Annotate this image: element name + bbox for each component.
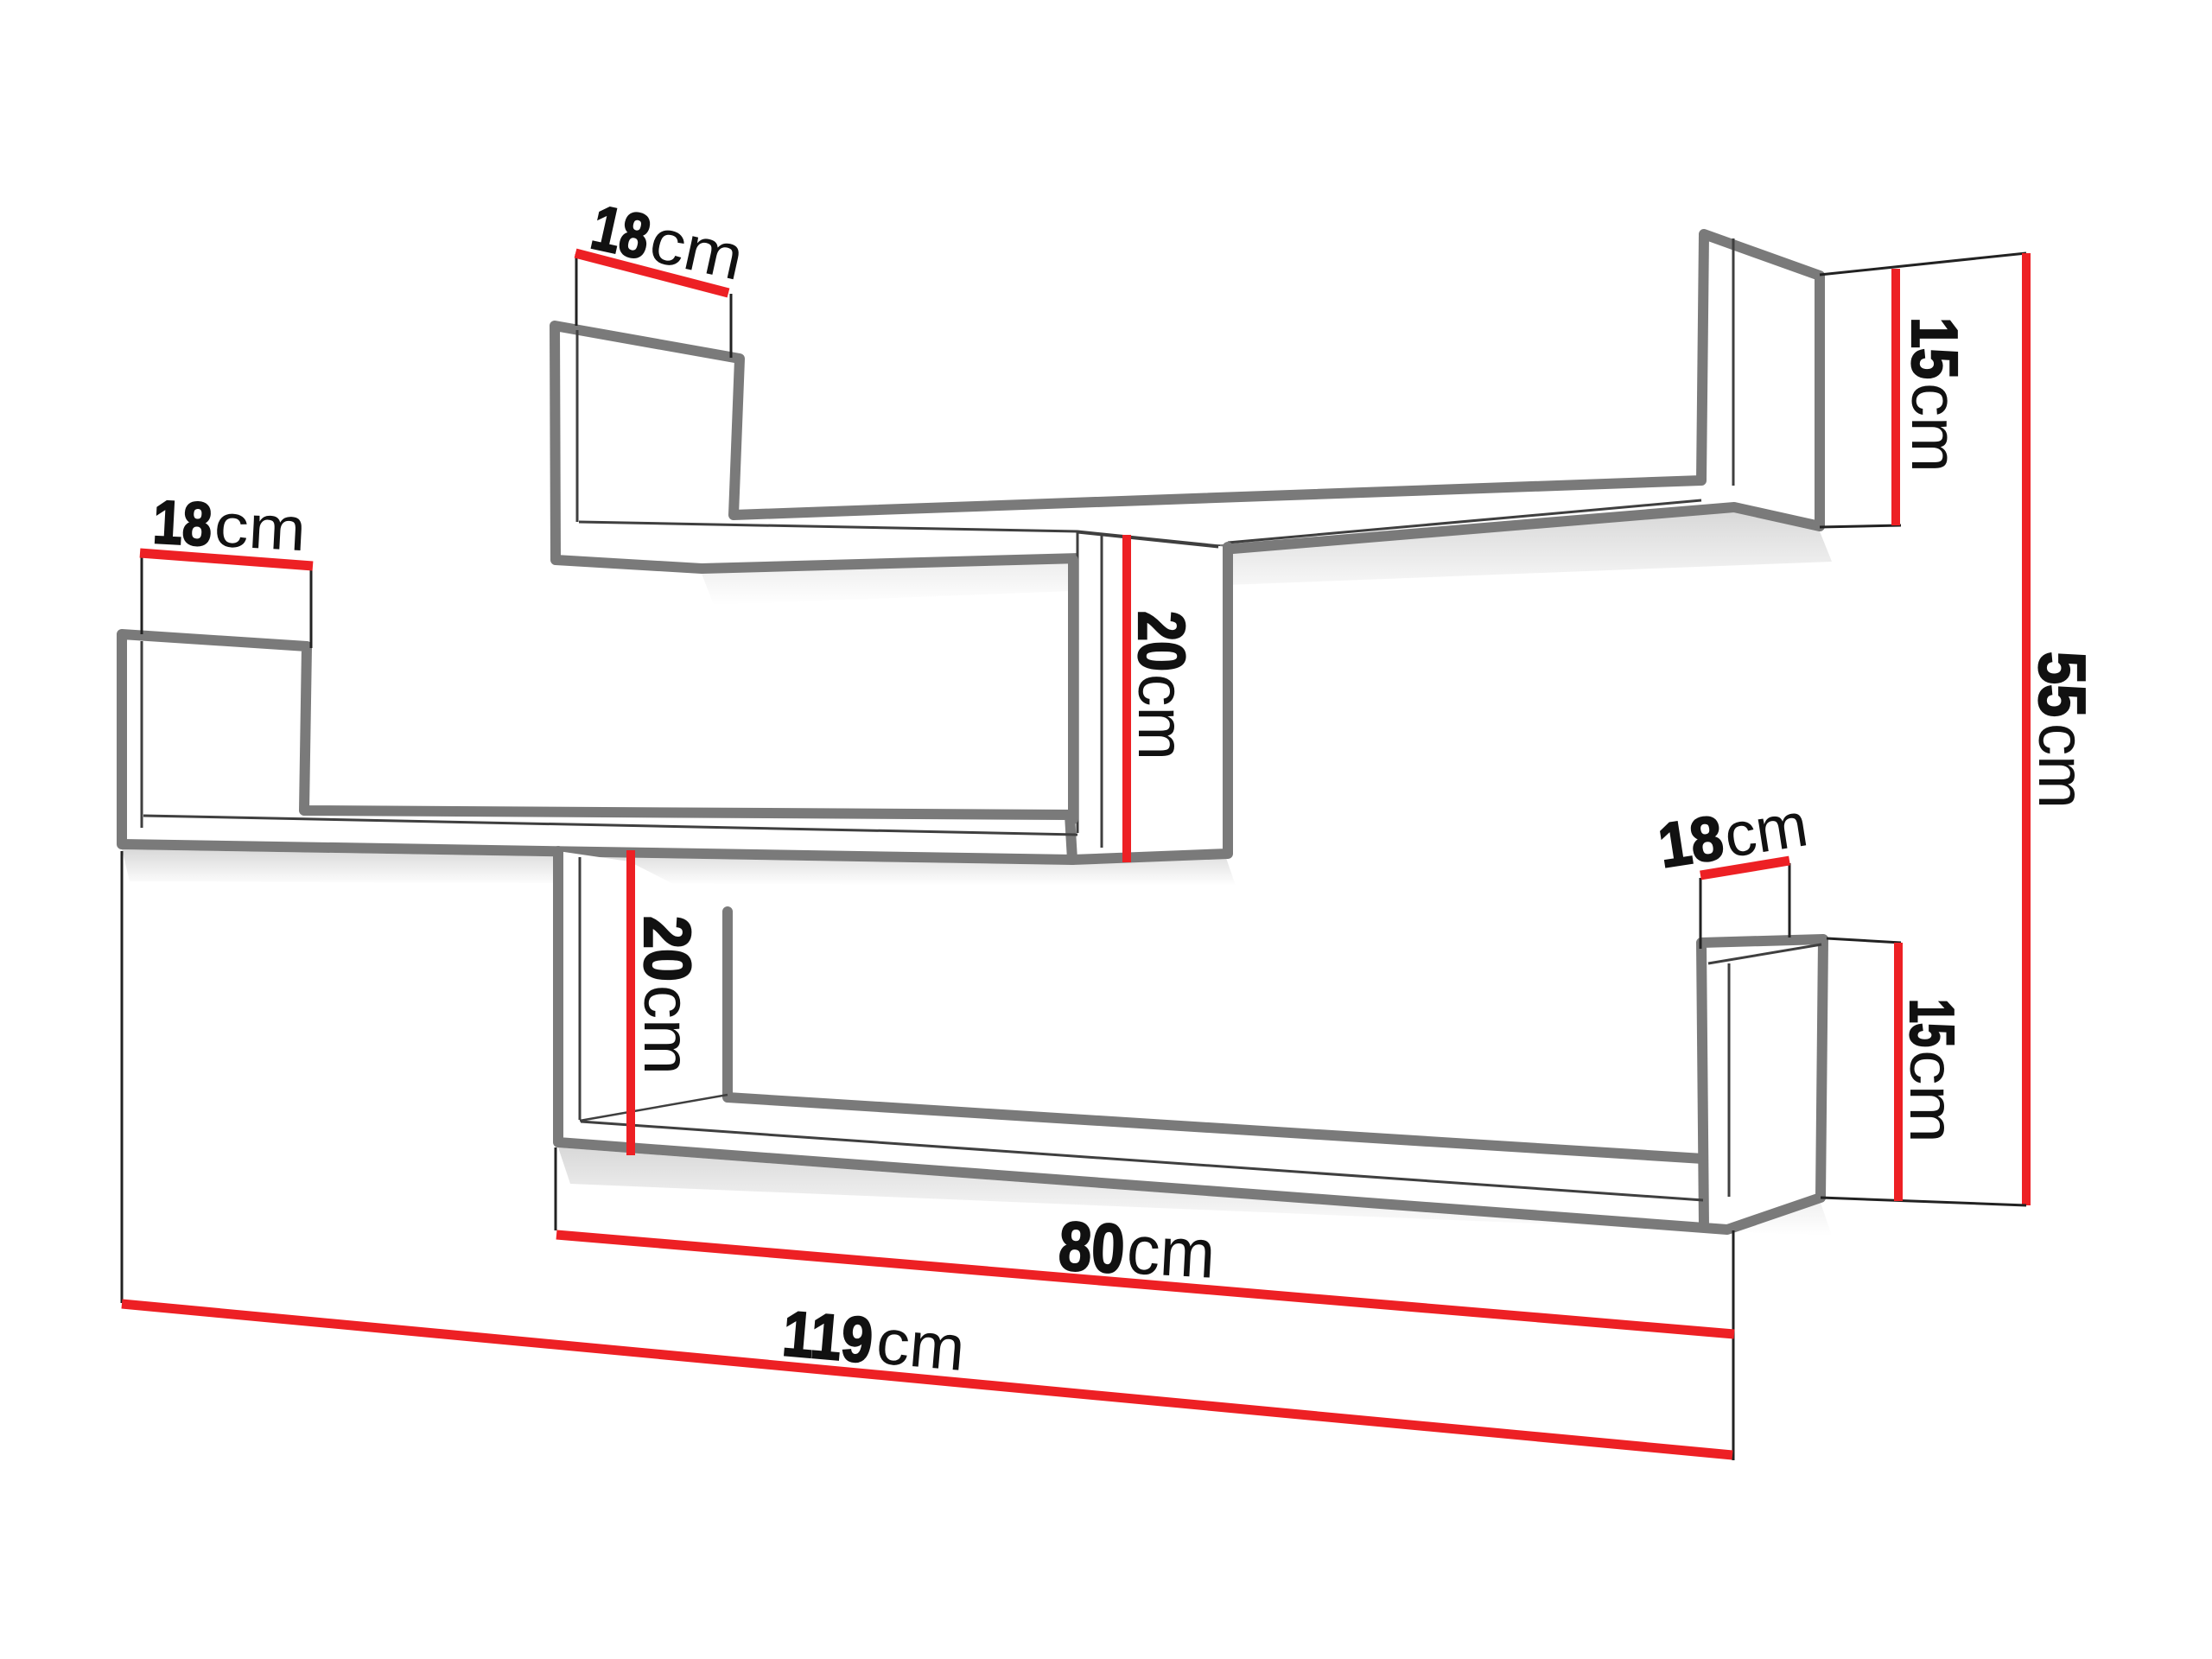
svg-text:80: 80	[1057, 1207, 1127, 1287]
svg-text:cm: cm	[630, 985, 703, 1075]
svg-text:cm: cm	[1897, 1050, 1966, 1143]
svg-text:18: 18	[1654, 803, 1727, 880]
svg-text:18: 18	[151, 488, 213, 559]
svg-text:cm: cm	[1719, 790, 1812, 871]
svg-text:cm: cm	[1124, 674, 1198, 760]
svg-text:cm: cm	[1898, 383, 1971, 473]
svg-text:119: 119	[780, 1297, 876, 1376]
svg-text:cm: cm	[1125, 1211, 1217, 1292]
svg-text:15: 15	[1898, 317, 1971, 379]
svg-text:cm: cm	[874, 1306, 968, 1384]
svg-text:20: 20	[1124, 611, 1198, 671]
svg-text:20: 20	[630, 916, 703, 982]
svg-text:cm: cm	[213, 492, 308, 564]
svg-text:cm: cm	[2024, 723, 2098, 809]
svg-text:15: 15	[1897, 999, 1966, 1047]
svg-text:55: 55	[2024, 652, 2098, 717]
